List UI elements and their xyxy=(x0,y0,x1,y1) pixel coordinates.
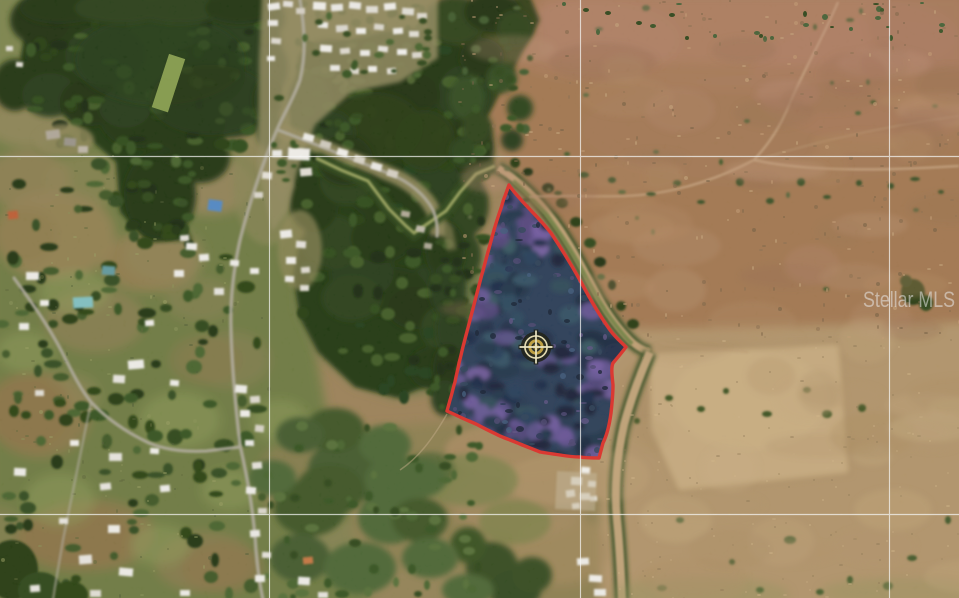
svg-text:Stellar MLS: Stellar MLS xyxy=(863,287,955,312)
